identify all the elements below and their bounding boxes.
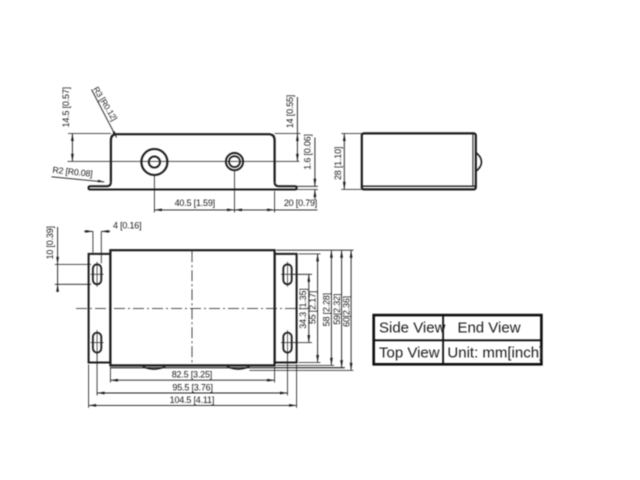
svg-text:58 [2.28]: 58 [2.28] bbox=[321, 293, 331, 326]
svg-text:104.5 [4.11]: 104.5 [4.11] bbox=[170, 395, 214, 405]
svg-text:Unit: mm[inch]: Unit: mm[inch] bbox=[447, 344, 543, 361]
svg-text:28 [1.10]: 28 [1.10] bbox=[333, 147, 343, 180]
svg-text:14 [0.55]: 14 [0.55] bbox=[285, 95, 295, 128]
svg-text:60[2.36]: 60[2.36] bbox=[341, 296, 351, 327]
svg-text:10 [0.39]: 10 [0.39] bbox=[45, 226, 55, 259]
svg-text:82.5 [3.25]: 82.5 [3.25] bbox=[172, 370, 212, 380]
svg-text:End View: End View bbox=[457, 320, 520, 337]
svg-text:95.5 [3.76]: 95.5 [3.76] bbox=[172, 382, 212, 392]
svg-text:Top View: Top View bbox=[379, 344, 440, 361]
svg-text:1.6 [0.06]: 1.6 [0.06] bbox=[302, 134, 312, 170]
svg-text:59[2.32]: 59[2.32] bbox=[332, 294, 342, 325]
svg-text:14.5 [0.57]: 14.5 [0.57] bbox=[61, 87, 71, 127]
svg-text:4 [0.16]: 4 [0.16] bbox=[113, 220, 141, 230]
svg-text:34.3 [1.35]: 34.3 [1.35] bbox=[298, 288, 308, 328]
svg-text:Side View: Side View bbox=[379, 320, 446, 337]
svg-text:55 [2.17]: 55 [2.17] bbox=[308, 291, 318, 324]
svg-text:20 [0.79]: 20 [0.79] bbox=[284, 198, 317, 208]
svg-text:40.5 [1.59]: 40.5 [1.59] bbox=[175, 198, 215, 208]
